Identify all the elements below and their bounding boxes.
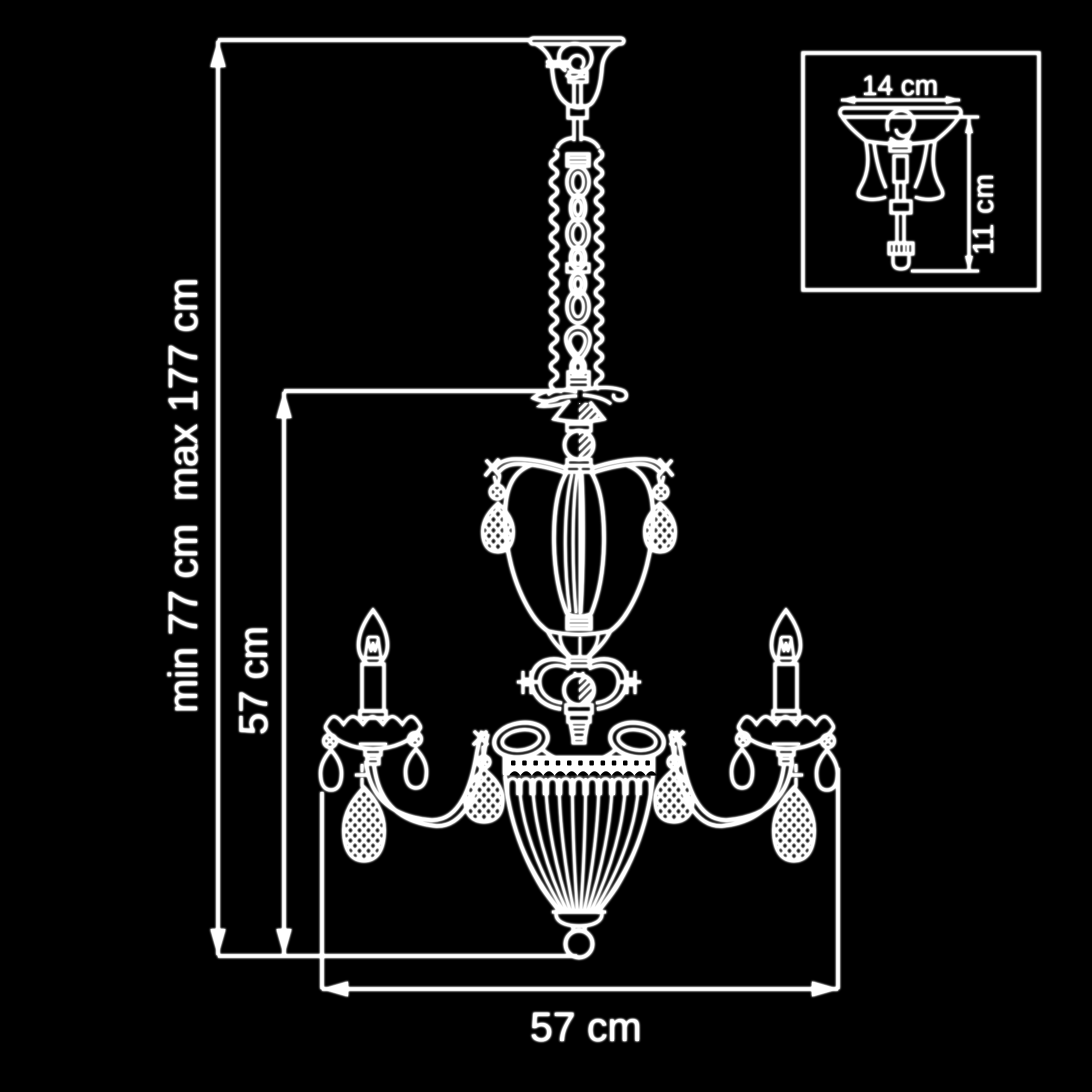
svg-text:57 cm: 57 cm bbox=[232, 626, 276, 735]
svg-text:14 cm: 14 cm bbox=[862, 70, 938, 101]
svg-text:57 cm: 57 cm bbox=[530, 1004, 642, 1050]
svg-text:11 cm: 11 cm bbox=[968, 173, 1000, 255]
svg-text:min 77 cm max 177 cm: min 77 cm max 177 cm bbox=[160, 278, 206, 713]
